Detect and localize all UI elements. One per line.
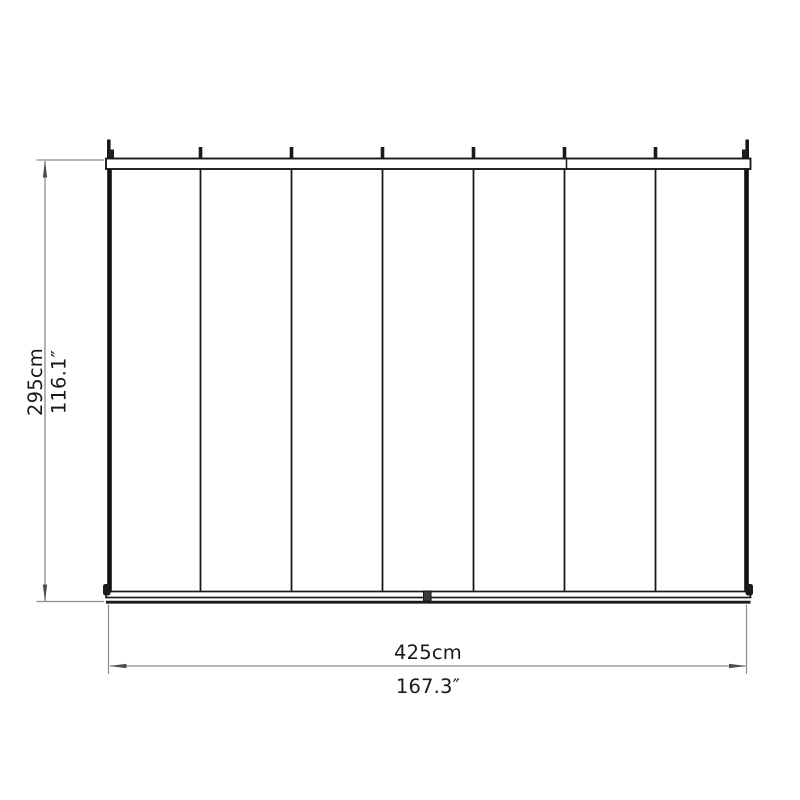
arrow-down-icon (43, 585, 47, 602)
roof-tick (199, 147, 203, 159)
arrow-up-icon (43, 161, 47, 178)
top-beam (106, 159, 751, 170)
corner-tick-right (742, 140, 749, 159)
corner-bracket-left (103, 584, 111, 596)
roof-tick (381, 147, 385, 159)
height-metric-label: 295cm (24, 348, 47, 416)
corner-bracket-right (746, 584, 754, 596)
arrow-right-icon (729, 664, 746, 668)
width-dimension: 425cm 167.3″ (109, 605, 747, 699)
panel-structure (103, 140, 753, 603)
center-clip (424, 591, 432, 601)
roof-tick (654, 147, 658, 159)
roof-tick (472, 147, 476, 159)
roof-ticks (199, 147, 658, 159)
height-imperial-label: 116.1″ (48, 350, 71, 414)
panel-lines (201, 169, 656, 592)
corner-tick-left (107, 140, 114, 159)
arrow-left-icon (110, 664, 127, 668)
drawing-canvas: 295cm 116.1″ 425cm 167.3″ (0, 0, 800, 800)
dimension-diagram: 295cm 116.1″ 425cm 167.3″ (0, 0, 800, 800)
height-dimension: 295cm 116.1″ (24, 160, 104, 602)
width-metric-label: 425cm (394, 641, 462, 664)
roof-tick (563, 147, 567, 159)
width-imperial-label: 167.3″ (396, 675, 460, 698)
roof-tick (290, 147, 294, 159)
